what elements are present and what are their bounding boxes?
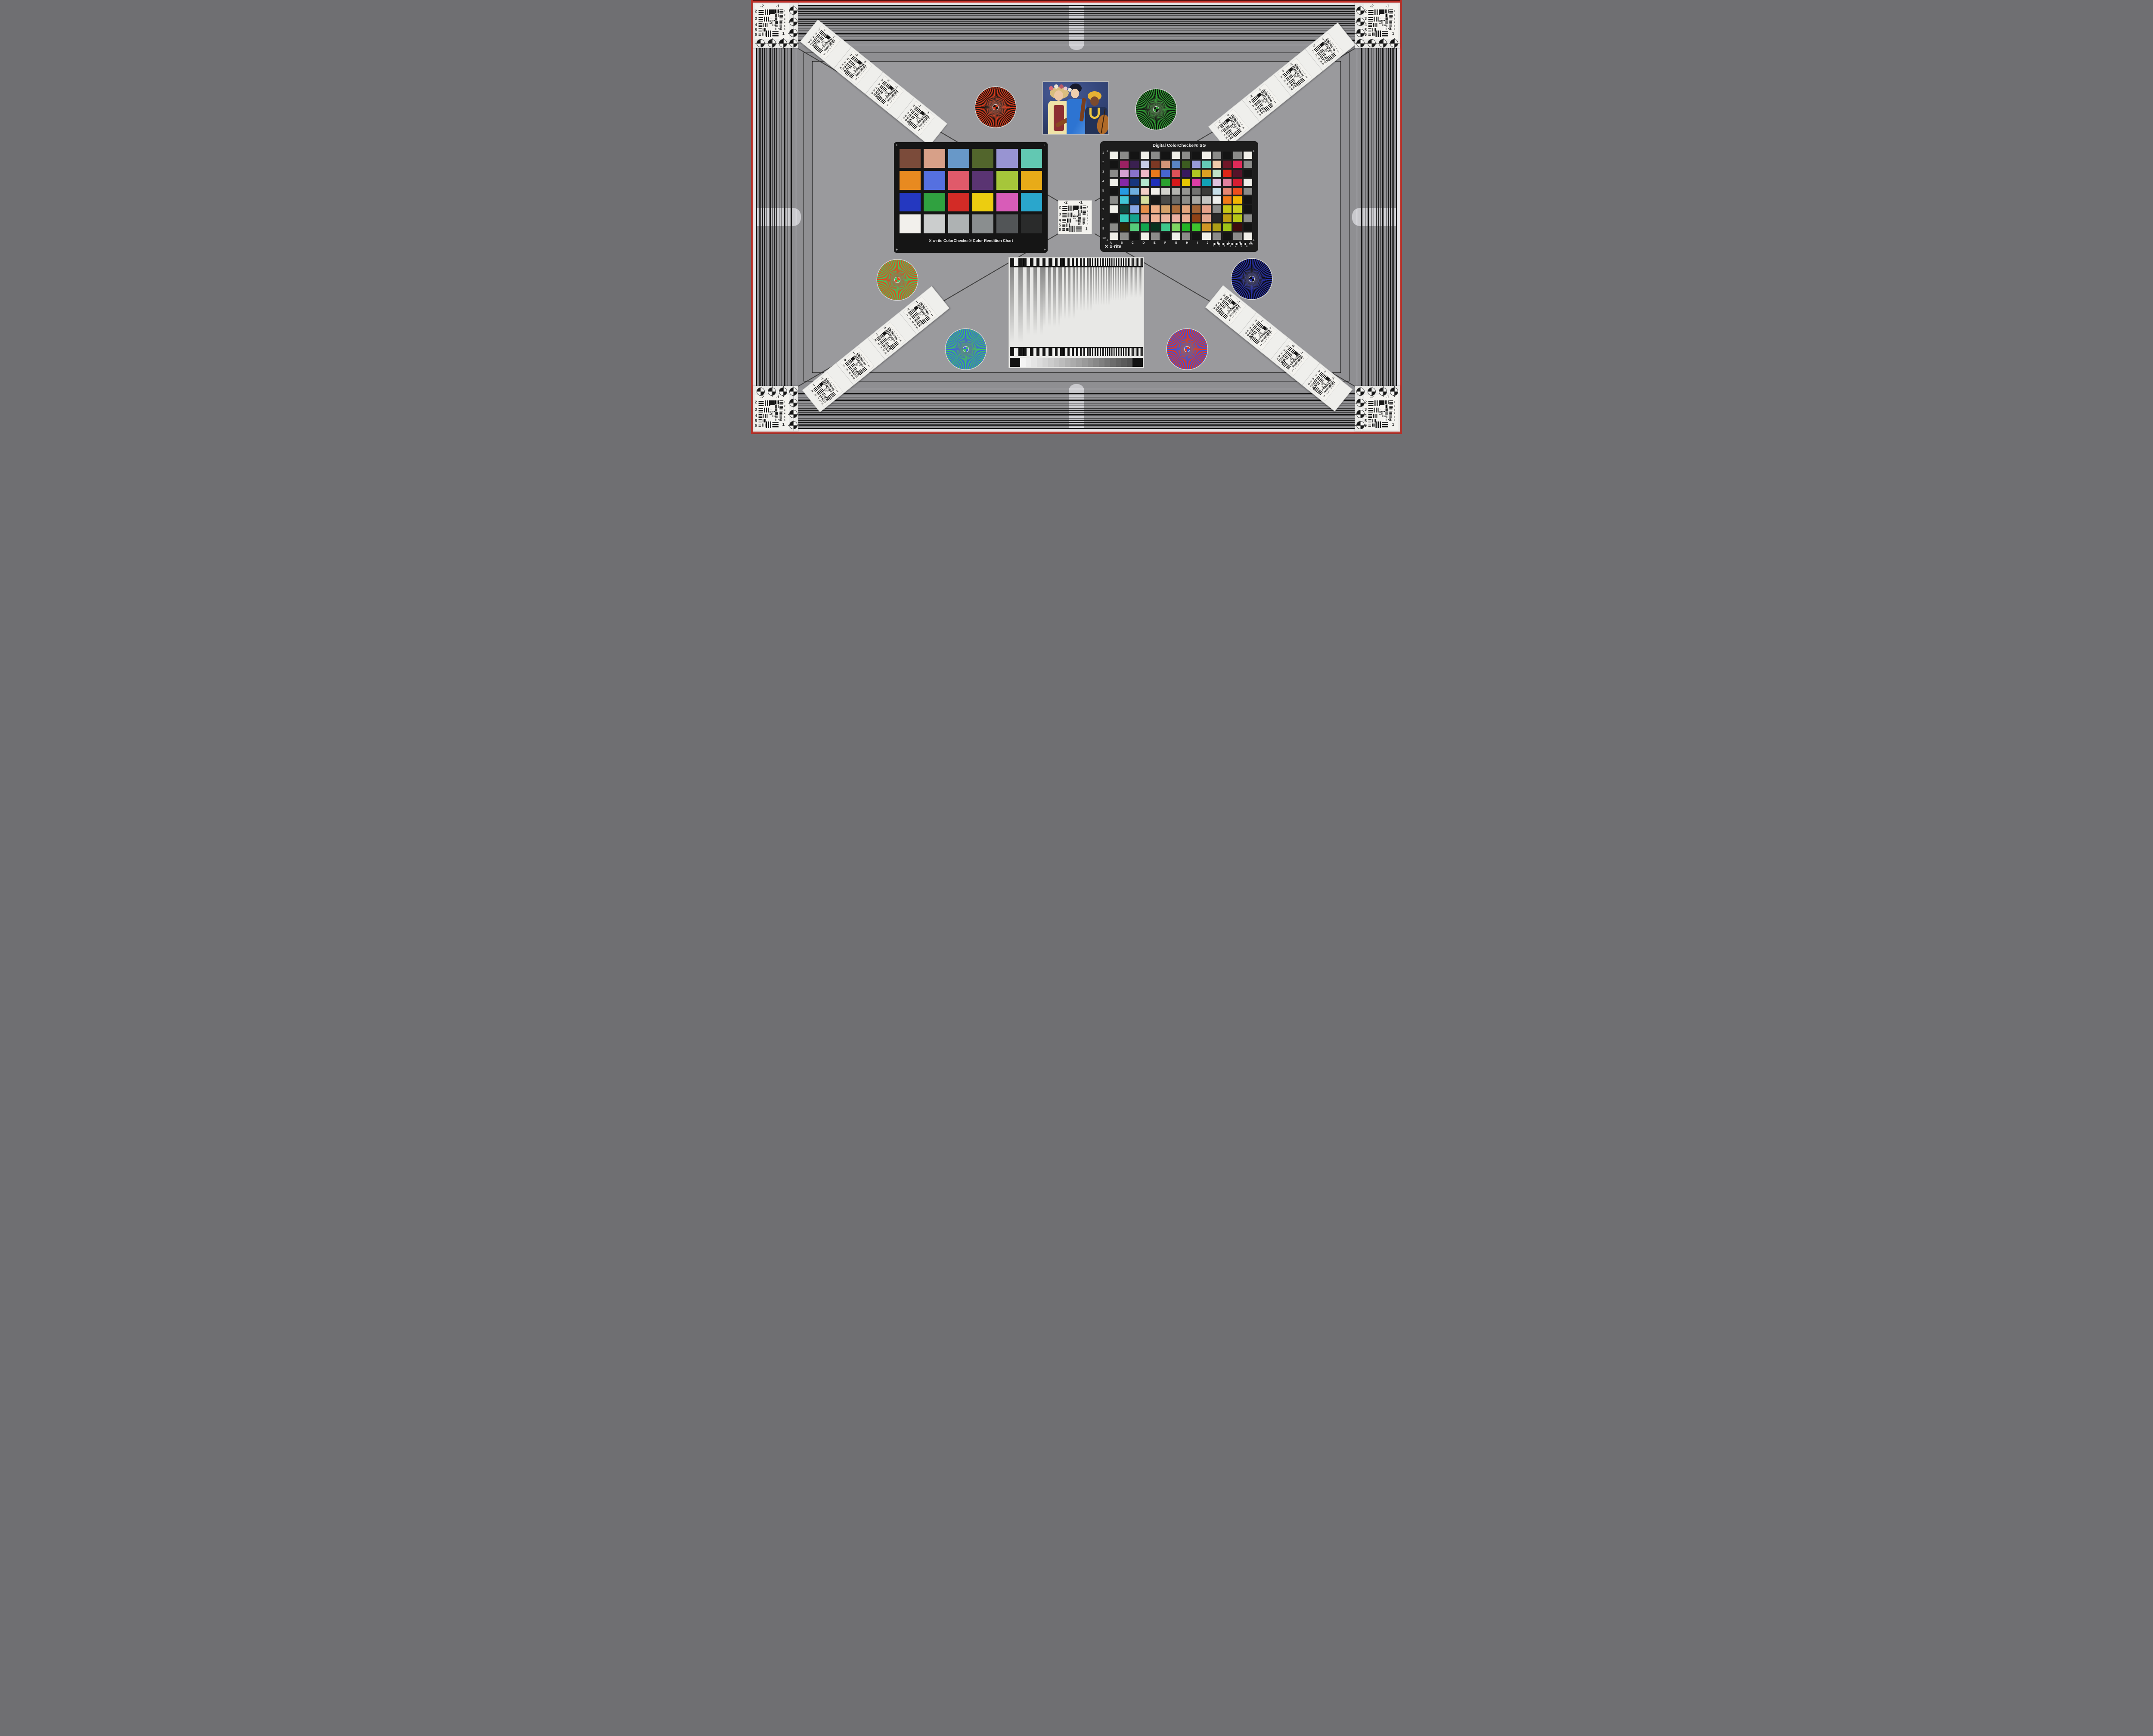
quadrant-fiducial-icon: [1356, 387, 1365, 396]
color-patch: [1082, 358, 1088, 367]
usaf-element-number: 4: [755, 22, 757, 27]
usaf-element-number: 3: [894, 331, 896, 333]
usaf-element-number: 3: [755, 16, 757, 21]
color-patch: [1192, 188, 1201, 195]
usaf-element-number: 4: [924, 124, 925, 125]
quadrant-fiducial-icon: [1356, 29, 1365, 37]
usaf-element-number: 1: [1271, 332, 1272, 334]
usaf-group-label: -2: [906, 307, 910, 311]
usaf-group-label: 1: [1273, 101, 1276, 104]
usaf-element-number: 2: [1394, 405, 1395, 408]
registration-mark: +: [1106, 149, 1108, 153]
usaf-micro-label: 1: [1384, 18, 1385, 19]
registration-mark: +: [1044, 143, 1046, 147]
siemens-star-red-black: [975, 87, 1016, 127]
color-patch: [1042, 358, 1048, 367]
usaf-group-label: -2: [778, 417, 782, 422]
color-patch: [1202, 170, 1211, 177]
color-patch: [1141, 188, 1149, 195]
usaf-element-number: 3: [1237, 118, 1238, 120]
color-patch: [1223, 179, 1232, 186]
usaf-black-square: [770, 400, 775, 405]
usaf-element-number: 4: [1333, 44, 1335, 46]
usaf-element-number: 6: [1087, 223, 1088, 226]
color-patch: [1244, 170, 1252, 177]
color-patch: [1202, 188, 1211, 195]
quadrant-fiducial-icon: [768, 39, 776, 47]
usaf-element-number: 3: [1394, 18, 1395, 21]
usaf-element-number: 4: [1234, 313, 1236, 315]
usaf-group-label: 1: [854, 77, 857, 81]
color-patch: [1141, 232, 1149, 240]
usaf-element-number: 4: [1087, 217, 1088, 220]
usaf-element-number: 4: [784, 22, 785, 24]
ruler-numbers: 0123456: [1213, 245, 1247, 248]
color-patch: [1172, 170, 1180, 177]
color-patch: [972, 193, 993, 212]
color-patch: [1161, 205, 1170, 213]
color-patch: [1021, 149, 1042, 168]
usaf-group-label: -2: [1260, 319, 1264, 322]
usaf-group-label: -2: [886, 78, 890, 82]
yellow-bead-necklace: [1089, 108, 1100, 119]
ruler-unit-label: mm: [1249, 243, 1253, 245]
usaf-group-label: -2: [918, 104, 921, 108]
usaf-group-label: -2: [1312, 44, 1316, 48]
usaf-element-number: 4: [864, 358, 866, 360]
usaf-group-label: -1: [863, 60, 867, 64]
color-patch: [1141, 179, 1149, 186]
usaf-micro-label: 0: [771, 18, 772, 19]
usaf-group-label: -1: [1386, 4, 1390, 8]
usaf-element-number: 4: [1365, 22, 1367, 27]
usaf-group-label: -2: [1218, 120, 1222, 124]
test-chart-scene: -2 -1 2 3 4 5 6 1 2 3 4 5 6: [751, 0, 1402, 434]
label: 7: [1102, 208, 1106, 211]
usaf-group-label: 1: [1392, 31, 1394, 36]
color-patch: [1213, 152, 1221, 159]
usaf-element-number: 2: [927, 120, 928, 121]
registration-mark: +: [1253, 238, 1255, 242]
color-patch: [1172, 205, 1180, 213]
label: D: [1142, 242, 1145, 245]
usaf-element-number: 3: [1331, 42, 1333, 44]
usaf-element-number: 5: [1394, 25, 1395, 28]
usaf-element-number: 5: [784, 25, 785, 28]
registration-mark: +: [896, 248, 898, 252]
usaf-element-number: 2: [861, 354, 862, 356]
usaf-micro-label: 1: [1078, 214, 1079, 215]
color-patch: [1172, 223, 1180, 231]
usaf-element-number: 3: [1236, 311, 1238, 313]
quadrant-fiducial-icon: [789, 387, 797, 396]
usaf-group-label: -2: [1388, 26, 1392, 31]
usaf-element-number: 6: [1394, 28, 1395, 31]
color-patch: [924, 149, 945, 168]
quadrant-fiducial-icon: [1390, 39, 1398, 47]
color-patch: [1151, 232, 1160, 240]
usaf-element-number: 5: [828, 50, 829, 51]
label: E: [1154, 242, 1156, 245]
usaf-element-number: 2: [895, 94, 897, 96]
color-patch: [1141, 170, 1149, 177]
usaf-element-number: 2: [1330, 40, 1331, 42]
color-patch: [1233, 152, 1242, 159]
usaf-group-label: -2: [823, 28, 827, 31]
color-patch: [1182, 152, 1191, 159]
usaf-group-label: -1: [1331, 376, 1335, 380]
label: 4: [1102, 180, 1106, 183]
usaf-element-number: 3: [755, 407, 757, 412]
color-patch: [1223, 223, 1232, 231]
usaf-element-number: 4: [1394, 412, 1395, 415]
color-patch: [900, 171, 921, 190]
usaf-element-number: 3: [925, 306, 927, 307]
quadrant-fiducial-icon: [1356, 410, 1365, 418]
color-patch: [1172, 196, 1180, 204]
color-patch: [1233, 223, 1242, 231]
quadrant-fiducial-icon: [1356, 18, 1365, 26]
color-patch: [1202, 179, 1211, 186]
usaf-element-number: 1: [1302, 358, 1304, 360]
color-patch: [1151, 161, 1160, 168]
color-patch: [1110, 161, 1118, 168]
color-patch: [972, 171, 993, 190]
color-patch: [1192, 161, 1201, 168]
label: 5: [1241, 245, 1242, 248]
wedge-black-cap: [1010, 358, 1020, 367]
color-patch: [1120, 170, 1129, 177]
color-patch: [1130, 170, 1139, 177]
usaf-element-number: 4: [892, 98, 894, 100]
quadrant-fiducial-icon: [789, 399, 797, 407]
usaf-element-number: 4: [755, 413, 757, 418]
usaf-element-number: 3: [1394, 409, 1395, 412]
usaf-group-label: 1: [836, 389, 839, 393]
color-patch: [1223, 152, 1232, 159]
quadrant-fiducial-icon: [1356, 399, 1365, 407]
usaf-group-label: -2: [886, 99, 890, 102]
label: 2: [1102, 161, 1106, 164]
usaf-group-label: 1: [1228, 318, 1231, 322]
usaf-element-number: 4: [1059, 218, 1061, 222]
usaf-group-label: 1: [886, 103, 889, 106]
usaf-element-number: 4: [1297, 364, 1299, 366]
usaf-element-number: 4: [927, 307, 929, 309]
color-patch: [948, 149, 969, 168]
color-patch: [900, 193, 921, 212]
usaf-group-label: -2: [812, 384, 816, 387]
color-patch: [1202, 205, 1211, 213]
usaf-element-number: 6: [755, 32, 757, 37]
usaf-element-number: 4: [1266, 339, 1268, 341]
color-patch: [1054, 358, 1059, 367]
usaf-element-number: 1: [1394, 401, 1395, 404]
usaf-element-number: 1: [784, 10, 785, 13]
color-patch: [996, 149, 1018, 168]
usaf-group-label: -1: [895, 85, 899, 89]
corner-target-bottom-right: -2 -1 2 3 4 5 6 1 2 3 4 5 6: [1355, 386, 1400, 431]
registration-mark: +: [1044, 248, 1046, 252]
color-patch: [1213, 179, 1221, 186]
usaf-element-number: 2: [755, 400, 757, 404]
usaf-element-number: 2: [1365, 400, 1367, 404]
color-patch: [1223, 161, 1232, 168]
registration-mark: +: [1106, 238, 1108, 242]
usaf-group-label: -2: [1064, 200, 1067, 204]
label: 3: [1102, 170, 1106, 174]
quadrant-fiducial-icon: [1390, 387, 1398, 396]
usaf-group-label: -2: [1228, 293, 1232, 297]
color-patch: [1020, 358, 1026, 367]
registration-mark: +: [1253, 149, 1255, 153]
color-patch: [1151, 196, 1160, 204]
quadrant-fiducial-icon: [789, 410, 797, 418]
colorchecker-classic-chart: + + + + ✕ x-rite ColorChecker® Color Ren…: [894, 142, 1048, 253]
usaf-group-label: -2: [1388, 417, 1392, 422]
usaf-element-number: 6: [784, 28, 785, 31]
usaf-element-number: 2: [1365, 9, 1367, 13]
color-patch: [924, 171, 945, 190]
usaf-element-number: 2: [832, 43, 834, 45]
usaf-element-number: 3: [1365, 16, 1367, 21]
color-patch: [1223, 214, 1232, 222]
usaf-group-label: -2: [778, 26, 782, 31]
color-patch: [1141, 205, 1149, 213]
usaf-1951-resolution-chart: -2 -1 2 3 4 5 6 1 2 3 4 5 6: [754, 395, 789, 430]
color-patch: [948, 171, 969, 190]
usaf-group-label: -2: [1323, 369, 1327, 373]
usaf-element-number: 1: [897, 92, 899, 94]
color-patch: [1121, 358, 1127, 367]
usaf-element-number: 2: [924, 304, 925, 305]
usaf-element-number: 3: [1267, 337, 1269, 338]
color-patch: [1021, 214, 1042, 233]
label: H: [1186, 242, 1188, 245]
color-patch: [1161, 232, 1170, 240]
usaf-group-label: -2: [855, 73, 859, 77]
usaf-group-label: -1: [776, 4, 780, 8]
usaf-element-number: 2: [1269, 335, 1271, 336]
color-patch: [1151, 205, 1160, 213]
usaf-element-number: 5: [1394, 416, 1395, 418]
usaf-group-label: -1: [1386, 395, 1390, 399]
usaf-element-number: 6: [858, 77, 859, 78]
color-patch: [1182, 223, 1191, 231]
usaf-element-number: 5: [1087, 220, 1088, 223]
usaf-element-number: 2: [1394, 14, 1395, 17]
usaf-group-label: -1: [1079, 200, 1083, 204]
usaf-element-number: 2: [892, 329, 894, 331]
colorchecker-sg-chart: Digital ColorChecker® SG 12345678910 ABC…: [1100, 141, 1258, 252]
usaf-group-label: -2: [1291, 344, 1295, 348]
bottom-line-band: [756, 393, 1397, 429]
color-patch: [1110, 205, 1118, 213]
label: 1: [1219, 245, 1220, 248]
color-patch: [1130, 223, 1139, 231]
usaf-element-number: 1: [1334, 383, 1336, 385]
usaf-element-number: 3: [1087, 214, 1088, 216]
color-patch: [1120, 214, 1129, 222]
sg-mm-ruler: 0123456 mm: [1213, 243, 1253, 248]
bar-sweep-bottom: [1010, 348, 1143, 356]
usaf-micro-label: 1: [774, 409, 775, 410]
color-patch: [1161, 223, 1170, 231]
usaf-group-label: -2: [1081, 222, 1085, 226]
usaf-element-number: 2: [1300, 360, 1302, 362]
usaf-element-number: 4: [1238, 120, 1240, 122]
usaf-group-label: -2: [918, 124, 921, 127]
label: F: [1164, 242, 1166, 245]
color-patch: [1192, 179, 1201, 186]
right-line-band: [1361, 5, 1397, 429]
usaf-element-number: 5: [1328, 391, 1329, 393]
color-patch: [1244, 214, 1252, 222]
siemens-star-red-green: [877, 260, 918, 300]
flower-crown: [1049, 86, 1053, 90]
usaf-element-number: 2: [1087, 210, 1088, 212]
color-patch: [1182, 196, 1191, 204]
label: I: [1197, 242, 1198, 245]
frequency-sweep-chart: [1009, 257, 1144, 368]
usaf-element-number: 5: [1365, 418, 1367, 423]
usaf-element-number: 1: [1087, 206, 1088, 208]
color-patch: [1104, 358, 1110, 367]
color-patch: [1233, 161, 1242, 168]
color-patch: [1202, 214, 1211, 222]
grayscale-step-wedge: [1010, 358, 1143, 367]
color-patch: [1213, 223, 1221, 231]
color-patch: [1244, 232, 1252, 240]
usaf-element-number: 1: [834, 41, 836, 43]
color-patch: [1233, 170, 1242, 177]
usaf-group-label: -2: [1281, 69, 1284, 73]
color-patch: [1110, 152, 1118, 159]
color-patch: [1151, 152, 1160, 159]
usaf-black-square: [770, 9, 775, 14]
colorchecker-classic-patches: [900, 149, 1042, 233]
siemens-star-red-blue: [1167, 329, 1207, 369]
label: J: [1207, 242, 1208, 245]
quadrant-fiducial-icon: [1379, 39, 1387, 47]
usaf-element-number: 1: [1394, 10, 1395, 13]
color-patch: [1093, 358, 1099, 367]
color-patch: [1130, 205, 1139, 213]
color-patch: [1120, 223, 1129, 231]
usaf-element-number: 5: [1059, 223, 1061, 227]
color-patch: [1141, 214, 1149, 222]
color-patch: [1065, 358, 1070, 367]
usaf-element-number: 5: [859, 75, 861, 77]
usaf-element-number: 3: [1299, 362, 1300, 364]
usaf-group-label: -2: [1291, 364, 1295, 368]
color-patch: [1172, 152, 1180, 159]
usaf-group-label: -2: [760, 4, 764, 8]
color-patch: [948, 214, 969, 233]
color-patch: [1182, 161, 1191, 168]
corner-target-top-right: -2 -1 2 3 4 5 6 1 2 3 4 5 6: [1355, 3, 1400, 48]
musician-left-face: [1054, 90, 1063, 101]
color-patch: [1213, 188, 1221, 195]
usaf-1951-resolution-chart: -2 -1 2 3 4 5 6 1 2 3 4 5 6: [1364, 395, 1399, 430]
colorchecker-sg-title: Digital ColorChecker® SG: [1100, 143, 1258, 148]
color-patch: [1130, 196, 1139, 204]
usaf-element-number: 1: [784, 401, 785, 404]
registration-mark: +: [896, 143, 898, 147]
usaf-element-number: 4: [832, 384, 834, 385]
color-patch: [1233, 179, 1242, 186]
usaf-group-label: 1: [1085, 227, 1087, 231]
usaf-element-number: 4: [1394, 22, 1395, 24]
color-patch: [1120, 179, 1129, 186]
color-patch: [972, 149, 993, 168]
usaf-element-number: 3: [925, 122, 927, 124]
right-red-edge-strip: [1400, 0, 1402, 434]
color-patch: [1172, 232, 1180, 240]
quadrant-fiducial-icon: [1356, 6, 1365, 15]
usaf-black-square: [1380, 400, 1384, 405]
color-patch: [1213, 196, 1221, 204]
label: 0: [1213, 245, 1214, 248]
usaf-element-number: 3: [831, 382, 832, 384]
usaf-group-label: 1: [1291, 369, 1294, 372]
usaf-element-number: 2: [1235, 116, 1237, 118]
usaf-group-label: -2: [823, 48, 827, 52]
color-patch: [1037, 358, 1042, 367]
color-patch: [1151, 214, 1160, 222]
usaf-group-label: -2: [1370, 4, 1374, 8]
color-patch: [996, 214, 1018, 233]
usaf-element-number: 2: [864, 69, 866, 71]
corner-target-bottom-left: -2 -1 2 3 4 5 6 1 2 3 4 5 6: [753, 386, 798, 431]
color-patch: [1192, 214, 1201, 222]
color-patch: [1244, 196, 1252, 204]
color-patch: [1161, 179, 1170, 186]
color-patch: [1151, 223, 1160, 231]
usaf-element-number: 6: [921, 127, 922, 129]
color-patch: [1120, 188, 1129, 195]
usaf-element-number: 2: [1267, 91, 1269, 93]
flower-crown: [1059, 84, 1064, 89]
usaf-element-number: 6: [784, 419, 785, 422]
color-patch: [1202, 161, 1211, 168]
colorchecker-sg-patches: [1110, 152, 1252, 240]
color-patch: [1213, 214, 1221, 222]
color-patch: [1110, 232, 1118, 240]
color-patch: [1110, 214, 1118, 222]
color-patch: [1192, 196, 1201, 204]
musician-right-face: [1090, 96, 1099, 106]
color-patch: [1161, 170, 1170, 177]
color-patch: [1172, 161, 1180, 168]
usaf-group-label: 1: [1305, 75, 1308, 79]
usaf-element-number: 4: [1301, 69, 1303, 71]
usaf-group-label: -2: [855, 53, 859, 57]
usaf-element-number: 5: [890, 100, 892, 102]
bottom-red-edge-strip: [751, 431, 1402, 434]
label: 1: [1102, 152, 1106, 155]
usaf-element-number: 5: [1365, 28, 1367, 32]
usaf-element-number: 3: [1269, 93, 1270, 95]
usaf-micro-label: 0: [1074, 214, 1075, 215]
color-patch: [1151, 179, 1160, 186]
usaf-micro-label: 0: [1381, 409, 1381, 410]
color-patch: [1141, 161, 1149, 168]
musician-middle-face: [1071, 89, 1079, 98]
color-patch: [1213, 170, 1221, 177]
usaf-1951-resolution-chart: -2 -1 2 3 4 5 6 1 2 3 4 5 6: [754, 4, 789, 39]
color-patch: [1172, 188, 1180, 195]
